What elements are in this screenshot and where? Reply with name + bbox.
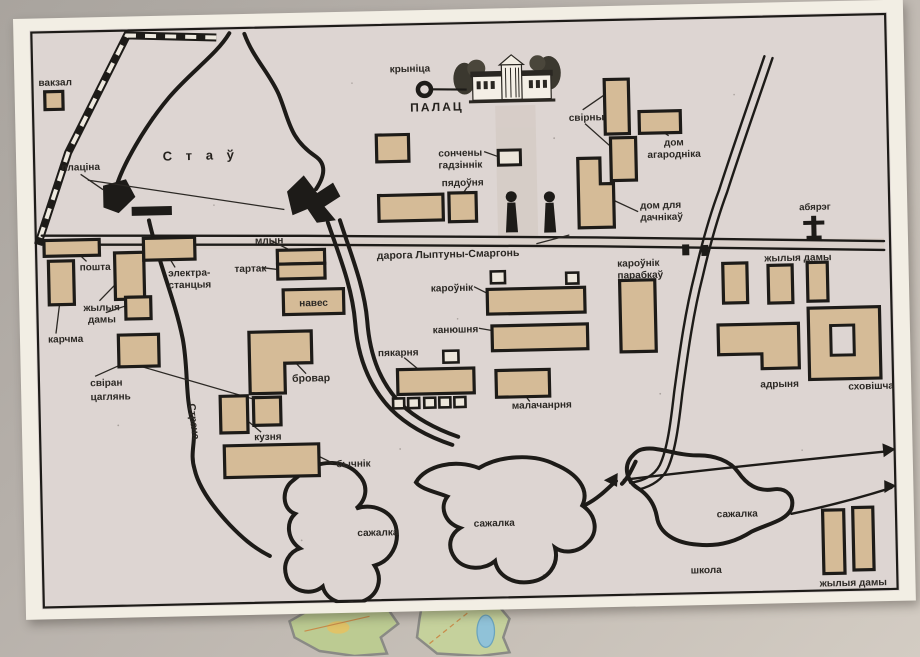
building-kaniushnia — [492, 324, 588, 351]
building-sundial — [498, 150, 520, 165]
building-shed-4 — [439, 397, 450, 407]
label-sazhalka-mid: сажалка — [474, 518, 516, 530]
building-vakzal — [45, 91, 63, 109]
railway-ties — [33, 34, 220, 245]
railway-line — [33, 34, 220, 245]
label-adrynia: адрыня — [760, 379, 799, 391]
pond-stau-west-shore — [113, 33, 233, 187]
map-board: вакзал плаціна С т а ў крыніца ПАЛАЦ сон… — [13, 0, 916, 620]
monument-base-icon — [807, 235, 822, 239]
pillar-2-post-icon — [544, 203, 557, 233]
building-zhyly-right-3 — [807, 262, 828, 301]
building-shed-small — [443, 351, 458, 363]
palace-pediment — [499, 55, 523, 65]
label-placina: плаціна — [61, 162, 100, 174]
map-canvas: вакзал плаціна С т а ў крыніца ПАЛАЦ сон… — [29, 12, 899, 610]
building-dom-dachnikau — [578, 158, 615, 228]
label-abiareh: абярэг — [799, 202, 831, 214]
building-bychnik — [224, 444, 319, 478]
label-stracha: Страча — [185, 403, 201, 441]
building-hut-2 — [566, 273, 578, 284]
gate-post-right — [701, 245, 708, 256]
building-hut-1 — [491, 271, 505, 283]
building-shed-2 — [408, 398, 419, 408]
label-karchma: карчма — [48, 334, 84, 346]
label-sunclock-2: гадзіннік — [438, 160, 482, 172]
building-shed-3 — [424, 398, 435, 408]
palace-alley — [495, 105, 538, 237]
label-krynica: крыніца — [390, 64, 431, 76]
building-karounik — [487, 287, 585, 314]
label-zhylyja-left-2: дамы — [88, 314, 116, 326]
label-sunclock-1: сончены — [438, 148, 482, 160]
label-piadounia: пядоўня — [442, 177, 484, 189]
label-kuznia: кузня — [254, 432, 282, 444]
building-zhyly-dom-2 — [126, 297, 152, 319]
building-kuznia-2 — [253, 397, 281, 425]
label-skhovishcha: сховішча — [848, 381, 894, 393]
map-border — [31, 14, 897, 608]
monument-post-icon — [811, 216, 816, 238]
building-elektrastancyja — [143, 237, 195, 260]
building-zhyly-bottom-1 — [823, 510, 845, 574]
building-shed-1 — [393, 398, 404, 408]
monument-arms-icon — [803, 221, 824, 225]
label-dom-agarodnika-2: агародніка — [647, 149, 701, 161]
label-tartak: тартак — [234, 263, 266, 275]
building-poshta — [44, 239, 100, 256]
label-karounik-parabkau-1: кароўнік — [617, 258, 660, 270]
label-karounik: кароўнік — [431, 283, 474, 295]
label-karounik-parabkau-2: парабкаў — [617, 270, 663, 282]
building-zhyly-dom-1 — [115, 252, 145, 299]
label-zhylyja-left-1: жылыя — [82, 302, 120, 314]
label-svirny: свірны — [569, 112, 605, 124]
label-dom-dachnikau-1: дом для — [640, 200, 682, 212]
building-sviran — [118, 334, 159, 367]
abiareh-monument — [803, 216, 825, 240]
label-poshta: пошта — [80, 262, 112, 274]
building-zhyly-right-2 — [768, 265, 793, 303]
building-zhyly-right-1 — [723, 263, 748, 303]
building-karounik-parabkau — [620, 280, 657, 352]
label-daroha: дарога Лыптуны-Смаргонь — [377, 248, 520, 262]
label-sviran-1: свіран — [90, 378, 123, 390]
building-karchma — [48, 261, 74, 305]
building-piadounia — [449, 192, 477, 221]
dam-bar — [132, 206, 172, 216]
fragment-lake — [477, 615, 495, 647]
building-long-court — [379, 194, 444, 221]
building-malacharnia — [496, 369, 550, 397]
label-stau: С т а ў — [162, 147, 239, 164]
label-shkola: школа — [691, 565, 723, 577]
label-sazhalka-left: сажалка — [357, 527, 399, 539]
pillar-2-ball-icon — [544, 191, 555, 202]
label-kaniushnia: канюшня — [433, 324, 479, 336]
palace-illustration — [453, 54, 562, 104]
label-sazhalka-right: сажалка — [717, 509, 759, 521]
pond-stau-east-shore — [244, 32, 323, 190]
pond-sazhalka-right — [626, 445, 793, 546]
skhovishcha-courtyard — [831, 325, 855, 355]
photo-of-information-board: { "colors":{ "map_background":"#ddd5d2",… — [0, 0, 920, 657]
label-palac: ПАЛАЦ — [410, 99, 464, 114]
building-kuznia-1 — [220, 396, 248, 433]
railroad — [33, 34, 220, 245]
label-mlyn: млын — [255, 235, 284, 247]
building-adrynia — [718, 323, 799, 369]
label-elektra-1: электра- — [168, 268, 210, 280]
label-sviran-2: цаглянь — [90, 391, 130, 403]
label-vakzal: вакзал — [38, 77, 72, 89]
label-zhylyja-bottom: жылыя дамы — [819, 577, 887, 589]
label-dom-dachnikau-2: дачнікаў — [640, 212, 683, 224]
dam-structures — [103, 175, 341, 228]
spring-link-line — [432, 89, 467, 91]
label-naves: навес — [299, 298, 328, 310]
building-near-palace — [376, 134, 409, 161]
label-piakarnia: пякарня — [378, 347, 419, 359]
label-malacharnia: малачанрня — [512, 400, 572, 412]
building-svirny-1 — [604, 79, 629, 134]
label-zhylyja-right: жылыя дамы — [763, 252, 831, 264]
building-shed-5 — [454, 397, 465, 407]
building-tartak — [278, 263, 326, 279]
mill-spillway — [287, 175, 341, 224]
gate-post-left — [682, 244, 689, 255]
estate-map: вакзал плаціна С т а ў крыніца ПАЛАЦ сон… — [29, 12, 899, 610]
label-elektra-2: станцыя — [168, 280, 211, 292]
building-piakarnia — [397, 368, 474, 394]
building-dom-agarodnika — [639, 111, 681, 134]
label-brovar: бровар — [292, 372, 330, 385]
label-bychnik: бычнік — [336, 459, 371, 471]
channel-a — [586, 481, 617, 504]
label-dom-agarodnika-1: дом — [664, 137, 684, 148]
building-zhyly-bottom-2 — [853, 507, 874, 570]
spring-icon — [418, 83, 431, 96]
building-svirny-2 — [610, 137, 636, 180]
